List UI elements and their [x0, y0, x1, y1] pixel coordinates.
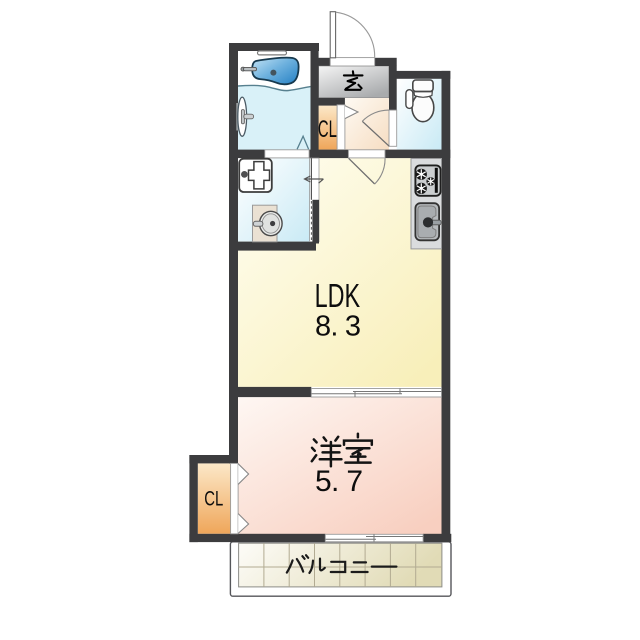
svg-text:CL: CL [204, 488, 223, 511]
svg-text:8. 3: 8. 3 [315, 311, 361, 343]
svg-text:LDK: LDK [315, 277, 361, 314]
svg-text:5. 7: 5. 7 [315, 465, 363, 498]
svg-text:CL: CL [318, 116, 337, 143]
